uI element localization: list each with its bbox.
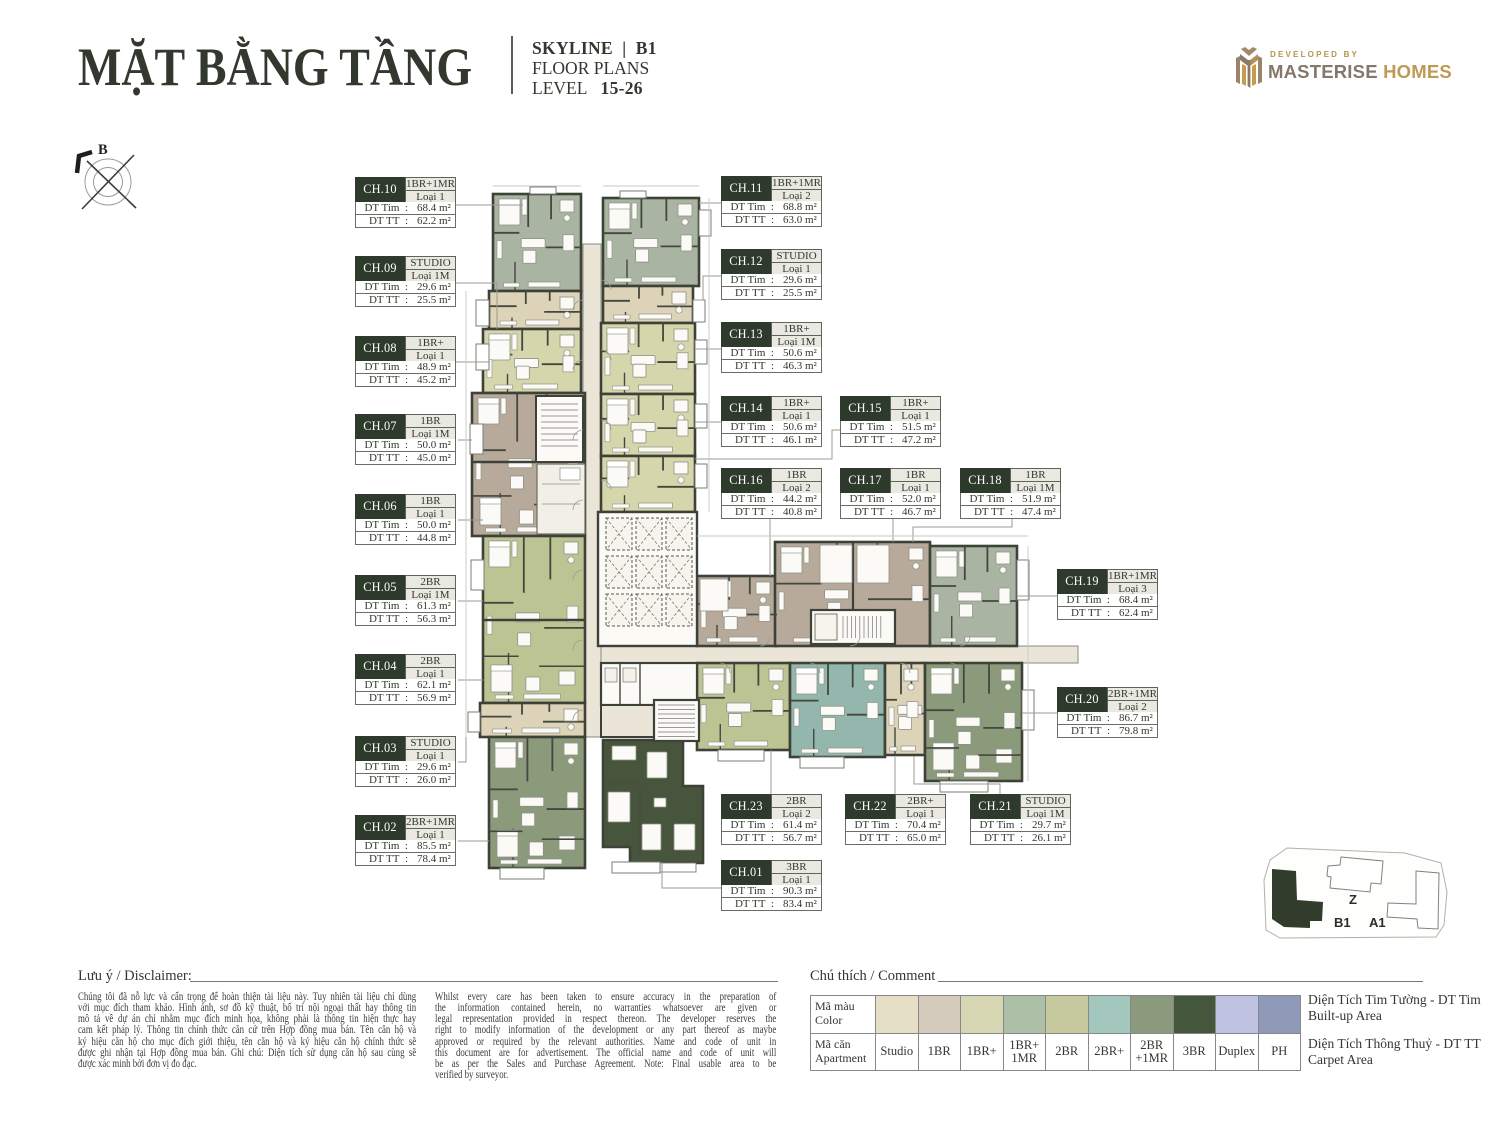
svg-text:Z: Z <box>1349 892 1357 907</box>
svg-text:A1: A1 <box>1369 915 1386 930</box>
svg-text:B1: B1 <box>1334 915 1351 930</box>
svg-text:B: B <box>98 142 108 158</box>
